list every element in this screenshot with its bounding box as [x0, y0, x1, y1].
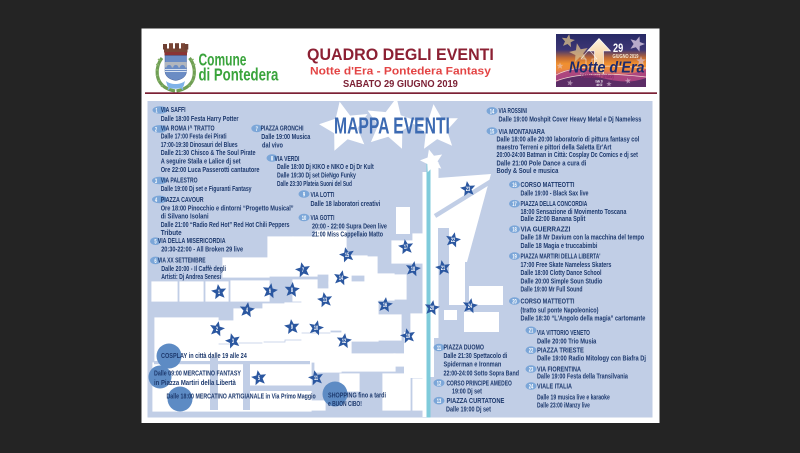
svg-text:CORSO PRINCIPE AMEDEO: CORSO PRINCIPE AMEDEO [447, 379, 512, 387]
svg-text:Dalle 23:30 Plateia Suoni del: Dalle 23:30 Plateia Suoni del Sud [277, 180, 352, 188]
svg-text:dal vivo: dal vivo [262, 142, 283, 150]
svg-text:19: 19 [406, 333, 410, 340]
svg-text:Dalle 19:00 Musica: Dalle 19:00 Musica [261, 134, 310, 142]
svg-text:SABATO 29 GIUGNO 2019: SABATO 29 GIUGNO 2019 [343, 78, 458, 89]
svg-text:VIA SAFFI: VIA SAFFI [161, 106, 186, 114]
svg-text:Dalle 20:00 Simple Soun Studio: Dalle 20:00 Simple Soun Studio [521, 278, 603, 286]
svg-text:22: 22 [529, 348, 534, 355]
svg-text:29: 29 [613, 43, 623, 55]
svg-text:VIA ROMA I^ TRATTO: VIA ROMA I^ TRATTO [161, 123, 215, 132]
svg-text:17:00 Free Skate Nameless Skat: 17:00 Free Skate Nameless Skaters [521, 261, 612, 269]
svg-text:Dalle 20:00 Trio Musia: Dalle 20:00 Trio Musia [537, 338, 597, 346]
svg-text:Dalle 19:00 Dj set e Figuranti: Dalle 19:00 Dj set e Figuranti Fantasy [161, 185, 252, 193]
svg-text:Dalle 18:00 Dj KIKO e NIKO e D: Dalle 18:00 Dj KIKO e NIKO e Dj Dr Kult [277, 163, 374, 171]
svg-text:PIAZZA CAVOUR: PIAZZA CAVOUR [161, 196, 204, 204]
svg-text:3: 3 [232, 338, 234, 345]
svg-text:7: 7 [256, 126, 258, 133]
svg-text:17: 17 [512, 201, 517, 208]
svg-text:PIAZZA MARTIRI DELLA LIBERTA': PIAZZA MARTIRI DELLA LIBERTA' [521, 253, 601, 261]
svg-text:PIAZZA CURTATONE: PIAZZA CURTATONE [447, 398, 505, 406]
svg-text:Dalle 19:00 Dj set: Dalle 19:00 Dj set [446, 406, 492, 414]
svg-text:20:00 - 22:00 Supra Deen live: 20:00 - 22:00 Supra Deen live [312, 223, 387, 231]
svg-text:Dalle 18:30 “L'Angolo della ma: Dalle 18:30 “L'Angolo della magia” carto… [521, 315, 646, 323]
svg-text:11: 11 [314, 375, 318, 382]
svg-text:Artisti: Dj Andrea Senesi: Artisti: Dj Andrea Senesi [161, 273, 221, 281]
svg-text:24: 24 [529, 384, 534, 391]
svg-text:8: 8 [291, 287, 293, 294]
svg-text:PIAZZA DELLA CONCORDIA: PIAZZA DELLA CONCORDIA [521, 200, 588, 208]
svg-text:Tribute: Tribute [161, 230, 182, 238]
svg-text:VIA DELLA MISERICORDIA: VIA DELLA MISERICORDIA [158, 237, 226, 245]
svg-text:8: 8 [271, 156, 273, 163]
svg-text:QUADRO DEGLI EVENTI: QUADRO DEGLI EVENTI [307, 46, 494, 64]
svg-text:24: 24 [468, 303, 472, 310]
svg-text:Dalle 19:00 Moshpit Cover Heav: Dalle 19:00 Moshpit Cover Heavy Metal e … [499, 116, 642, 124]
svg-text:23: 23 [529, 367, 534, 374]
svg-text:Spiderman e Ironman: Spiderman e Ironman [444, 361, 502, 369]
svg-text:di Silvano Isolani: di Silvano Isolani [161, 213, 209, 221]
svg-text:10: 10 [314, 325, 318, 332]
svg-text:VIA LOTTI: VIA LOTTI [311, 191, 335, 199]
svg-text:e BUON CIBO!: e BUON CIBO! [328, 400, 362, 408]
svg-text:12: 12 [342, 338, 346, 345]
svg-text:di Pontedera: di Pontedera [199, 66, 279, 85]
svg-text:11: 11 [437, 345, 441, 352]
svg-text:2: 2 [155, 126, 157, 133]
svg-text:4: 4 [246, 307, 248, 314]
svg-text:Dalle 09:00 MERCATINO FANTASY: Dalle 09:00 MERCATINO FANTASY [154, 370, 242, 378]
svg-text:13: 13 [437, 398, 442, 405]
svg-text:3: 3 [155, 178, 157, 185]
svg-text:Dalle 21:30 Chisco & The Soul: Dalle 21:30 Chisco & The Soul Pirate [161, 149, 256, 157]
svg-text:5: 5 [258, 375, 260, 382]
svg-text:Dalle 19:30 Dj set DieNgo Funk: Dalle 19:30 Dj set DieNgo Funky [277, 172, 356, 180]
svg-text:CORSO MATTEOTTI: CORSO MATTEOTTI [521, 298, 575, 306]
svg-text:in Piazza Martiri della Libert: in Piazza Martiri della Libertà [154, 379, 236, 387]
svg-text:Dalle 19:00 - Black Sax live: Dalle 19:00 - Black Sax live [521, 190, 589, 198]
svg-text:16: 16 [512, 182, 517, 189]
svg-text:VIA VITTORIO VENETO: VIA VITTORIO VENETO [537, 329, 590, 337]
svg-text:Dalle 19:00 Festa della Transi: Dalle 19:00 Festa della Transilvania [537, 373, 628, 381]
svg-text:alle 02: alle 02 [597, 82, 603, 87]
svg-text:PIAZZA DUOMO: PIAZZA DUOMO [444, 344, 484, 352]
svg-text:Dalle 22:00 Banana Split: Dalle 22:00 Banana Split [521, 215, 586, 223]
svg-text:Dalle 18 laboratori creativi: Dalle 18 laboratori creativi [311, 200, 381, 208]
svg-text:Dalle 18 Magia e truccabimbi: Dalle 18 Magia e truccabimbi [521, 242, 598, 250]
svg-text:1: 1 [218, 289, 220, 296]
svg-text:17: 17 [404, 244, 408, 251]
svg-text:Dalle 18:00 alle 20:00 laborat: Dalle 18:00 alle 20:00 laboratorio di pi… [497, 136, 640, 144]
svg-text:CORSO MATTEOTTI: CORSO MATTEOTTI [521, 181, 575, 189]
svg-text:14: 14 [339, 275, 343, 282]
svg-text:15: 15 [345, 252, 349, 259]
svg-text:PIAZZA TRIESTE: PIAZZA TRIESTE [537, 347, 584, 355]
svg-text:14: 14 [490, 108, 495, 115]
svg-text:VIA GUERRAZZI: VIA GUERRAZZI [521, 226, 571, 234]
svg-text:Ore 22:00 Luca Passerotti cant: Ore 22:00 Luca Passerotti cantautore [161, 166, 260, 174]
svg-text:VIA GOTTI: VIA GOTTI [311, 214, 335, 222]
svg-text:SHOPPING fino a tardi: SHOPPING fino a tardi [328, 392, 386, 400]
svg-text:18: 18 [411, 266, 415, 273]
svg-text:PIAZZA GRONCHI: PIAZZA GRONCHI [261, 125, 304, 133]
svg-text:VIA XX SETTEMBRE: VIA XX SETTEMBRE [158, 257, 206, 265]
svg-text:5: 5 [154, 239, 156, 246]
svg-text:VIA PALESTRO: VIA PALESTRO [161, 177, 198, 185]
svg-text:21: 21 [529, 328, 534, 335]
svg-text:13: 13 [323, 297, 327, 304]
svg-text:22: 22 [451, 237, 455, 244]
svg-text:6: 6 [269, 288, 271, 295]
svg-text:Dalle 21:00 Pole Dance a cura: Dalle 21:00 Pole Dance a cura di [497, 160, 587, 168]
svg-text:21:00 Miss Cappellaio Matto: 21:00 Miss Cappellaio Matto [312, 231, 383, 239]
svg-text:Dalle 17:00 Festa dei Pirati: Dalle 17:00 Festa dei Pirati [161, 133, 227, 141]
svg-text:A seguire Staila e Lalice dj s: A seguire Staila e Lalice dj set [161, 158, 242, 166]
svg-text:22:00-24:00 Sotto Sopra Band: 22:00-24:00 Sotto Sopra Band [444, 370, 519, 378]
svg-text:VIA ROSSINI: VIA ROSSINI [499, 107, 528, 115]
svg-text:MAPPA EVENTI: MAPPA EVENTI [334, 113, 450, 139]
svg-text:Ore 18:00 Pinocchio e dintorni: Ore 18:00 Pinocchio e dintorni “Progetto… [161, 205, 294, 213]
svg-text:21: 21 [441, 265, 445, 272]
svg-text:20:00-24:00 Batman in Città:: 20:00-24:00 Batman in Città: Cosplay Dc … [497, 151, 639, 159]
svg-text:VIALE ITALIA: VIALE ITALIA [537, 383, 572, 391]
svg-text:6: 6 [154, 258, 156, 265]
svg-text:Dalle 18:00 MERCATINO ARTIGIAN: Dalle 18:00 MERCATINO ARTIGIANALE in Via… [167, 393, 316, 401]
svg-text:COSPLAY in città dalle 19 alle: COSPLAY in città dalle 19 alle 24 [161, 352, 247, 360]
svg-text:7: 7 [302, 267, 304, 274]
svg-text:10: 10 [302, 215, 307, 222]
svg-text:19: 19 [512, 254, 517, 261]
svg-text:9: 9 [291, 324, 293, 331]
svg-text:19:00 Dj set: 19:00 Dj set [452, 388, 483, 396]
svg-text:VIA VERDI: VIA VERDI [275, 155, 300, 163]
svg-text:20:30-22:00 - All Broken 29 li: 20:30-22:00 - All Broken 29 live [161, 246, 243, 254]
svg-text:9: 9 [303, 192, 305, 199]
svg-text:Dalle 21:30 Spettacolo di: Dalle 21:30 Spettacolo di [444, 352, 508, 360]
svg-text:20: 20 [512, 299, 517, 306]
svg-text:20: 20 [430, 305, 434, 312]
svg-text:15: 15 [490, 129, 495, 136]
svg-text:Notte d'Era - Pontedera Fantas: Notte d'Era - Pontedera Fantasy [310, 66, 491, 78]
svg-text:12: 12 [437, 380, 442, 387]
svg-text:1: 1 [155, 108, 157, 115]
svg-text:Dalle 19:00 Mr Full Sound: Dalle 19:00 Mr Full Sound [521, 286, 583, 294]
svg-text:Dalle 23:00 iManzy live: Dalle 23:00 iManzy live [537, 402, 590, 410]
svg-text:2: 2 [216, 326, 218, 333]
svg-text:16: 16 [383, 302, 387, 309]
svg-text:Dalle 18:00 Clotty Dance Schoo: Dalle 18:00 Clotty Dance School [521, 269, 602, 277]
svg-text:Body & Soul e musica: Body & Soul e musica [497, 168, 559, 176]
svg-text:Dalle 18 Mr Davium con la macc: Dalle 18 Mr Davium con la macchina del t… [521, 234, 645, 242]
svg-text:Dalle 18:00 Festa Harry Potter: Dalle 18:00 Festa Harry Potter [161, 115, 239, 123]
svg-text:23: 23 [466, 186, 470, 193]
svg-text:Dalle 21:00 “Radio Red Hot” Re: Dalle 21:00 “Radio Red Hot” Red Hot Chil… [161, 221, 290, 229]
svg-text:18: 18 [512, 227, 517, 234]
svg-text:17:00-19:30 Dinosauri del Blue: 17:00-19:30 Dinosauri del Blues [161, 141, 238, 149]
svg-text:Dalle 19:00 Radio Mitology con: Dalle 19:00 Radio Mitology con Biafra Dj [537, 355, 646, 363]
svg-text:Dalle 20:00 - Il Caffè degli: Dalle 20:00 - Il Caffè degli [161, 265, 226, 273]
